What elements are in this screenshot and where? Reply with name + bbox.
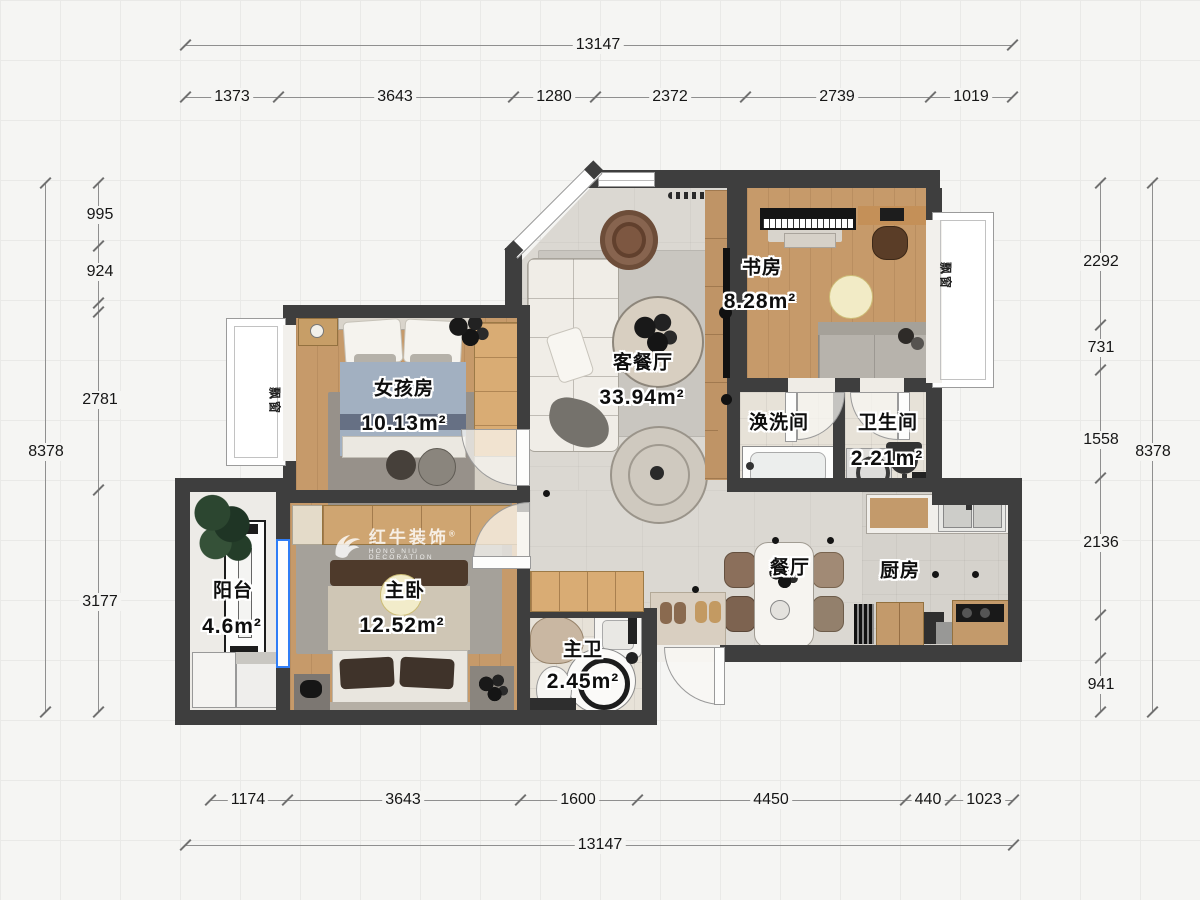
girl-nightstand-lamp [310, 324, 324, 338]
room-label-kitchen: 厨房 [880, 556, 920, 583]
balcony-cabinet [192, 652, 236, 708]
slippers-icon [660, 602, 672, 624]
ceiling-light-icon [972, 571, 979, 578]
wall [283, 305, 530, 318]
wall [740, 378, 788, 392]
dim-bottom-5: 1023 [963, 791, 1005, 809]
floorplan-page: { "colors": {"wall":"#3e3e3e","wood":"#c… [0, 0, 1200, 900]
entrance-door-leaf [714, 647, 725, 705]
desk-chair [872, 226, 908, 260]
dim-left-1: 924 [84, 263, 117, 281]
dim-left-0: 995 [84, 206, 117, 224]
ceiling-light-icon [932, 571, 939, 578]
wall [727, 478, 940, 492]
master-plant-icon [476, 672, 510, 706]
wall [727, 392, 740, 492]
room-label-study: 书房 [742, 253, 782, 280]
dim-top-2: 1280 [533, 88, 575, 106]
study-sofa-pillow [911, 337, 924, 350]
wall [175, 478, 190, 725]
wall [835, 378, 860, 392]
girl-plant-icon [444, 314, 492, 350]
dining-chair [724, 552, 756, 588]
balcony-plant-icon [190, 490, 254, 566]
room-label-masterbath: 主卫 [563, 635, 603, 662]
dim-right-1: 731 [1085, 339, 1118, 357]
bay-window-right-inner [940, 220, 986, 380]
dim-bottom-total: 13147 [575, 836, 626, 854]
girl-pouf [386, 450, 416, 480]
balcony-window [276, 539, 290, 668]
slippers-icon [674, 602, 686, 624]
knot-pillow [600, 210, 658, 270]
dim-right-3: 2136 [1080, 534, 1122, 552]
round-side-table-center [650, 466, 664, 480]
wall [276, 664, 290, 712]
dim-top-3: 2372 [649, 88, 691, 106]
wall [517, 567, 530, 612]
room-area-living: 33.94m² [599, 386, 684, 410]
dim-left-2: 2781 [79, 391, 121, 409]
wall [1008, 492, 1022, 662]
masterbath-shower-bar [628, 618, 637, 644]
tv-speaker-icon [721, 394, 732, 405]
room-area-girl: 10.13m² [361, 412, 446, 436]
girl-door-leaf [516, 429, 530, 486]
piano-keys [763, 219, 853, 228]
masterbath-drain-icon [626, 652, 638, 664]
wall [283, 460, 296, 503]
dim-right-0: 2292 [1080, 253, 1122, 271]
ceiling-light-icon [772, 537, 779, 544]
room-label-balcony: 阳台 [213, 576, 253, 603]
bay-window-label-right: 飘窗 [938, 262, 955, 290]
garland-decor-icon [668, 192, 710, 199]
cooktop-burner-icon [962, 608, 972, 618]
dining-teapot-icon [770, 600, 790, 620]
room-area-study: 8.28m² [724, 290, 797, 314]
slippers-icon [695, 601, 707, 623]
fridge-stripes [854, 604, 874, 644]
door-gap [860, 378, 904, 392]
kitchen-cutting-board [870, 498, 928, 528]
master-wardrobe-side [292, 505, 324, 545]
room-area-master: 12.52m² [359, 614, 444, 638]
room-area-masterbath: 2.45m² [547, 670, 620, 694]
dim-top-0: 1373 [211, 88, 253, 106]
master-bed-pillow [339, 657, 394, 690]
wall [517, 305, 530, 429]
room-area-balcony: 4.6m² [202, 615, 262, 639]
wall [175, 710, 657, 725]
wall [727, 170, 747, 392]
master-door-leaf [472, 556, 531, 569]
dining-chair [724, 596, 756, 632]
ceiling-light-icon [827, 537, 834, 544]
wall [283, 490, 530, 503]
dim-bottom-4: 440 [912, 791, 945, 809]
dim-bottom-3: 4450 [750, 791, 792, 809]
bull-logo-icon [332, 528, 363, 562]
bay-window-left-opening [283, 325, 296, 461]
watermark-sub: HONG NIU DECORATION [369, 549, 477, 562]
ceiling-light-icon [692, 586, 699, 593]
dining-chair [812, 596, 844, 632]
dim-right-4: 941 [1085, 676, 1118, 694]
dim-right-2: 1558 [1080, 431, 1122, 449]
bathtub-faucet-icon [746, 462, 754, 470]
wall [720, 645, 1022, 662]
ceiling-light-icon [543, 490, 550, 497]
registered-mark-icon: ® [449, 529, 458, 538]
kitchen-cabinet [876, 602, 924, 646]
floor-lamp [829, 275, 873, 319]
floorplan-canvas: 红牛装饰® HONG NIU DECORATION [0, 0, 1200, 900]
room-label-living: 客餐厅 [613, 348, 673, 375]
dim-top-1: 3643 [374, 88, 416, 106]
master-bed-pillow [399, 657, 454, 690]
room-label-bath: 卫生间 [858, 408, 918, 435]
dim-left-3: 3177 [79, 593, 121, 611]
dim-top-total: 13147 [573, 36, 624, 54]
door-gap [788, 378, 835, 392]
wall [642, 608, 657, 725]
dining-chair [812, 552, 844, 588]
wall [926, 385, 942, 492]
dim-top-5: 1019 [950, 88, 992, 106]
bay-window-label-left: 飘窗 [267, 387, 284, 415]
room-label-girl: 女孩房 [374, 374, 434, 401]
dim-line [185, 97, 1012, 98]
room-label-master: 主卧 [385, 576, 425, 603]
room-label-wash: 涣洗间 [749, 408, 809, 435]
master-nightstand-decor [300, 680, 322, 698]
watermark-brand: 红牛装饰 [369, 528, 449, 547]
girl-pouf [418, 448, 456, 486]
dim-right-total: 8378 [1132, 443, 1174, 461]
dim-bottom-2: 1600 [557, 791, 599, 809]
kitchen-gray-unit [936, 622, 952, 644]
dim-top-4: 2739 [816, 88, 858, 106]
dim-line [210, 800, 1013, 801]
dim-bottom-0: 1174 [228, 791, 268, 809]
brand-watermark: 红牛装饰® HONG NIU DECORATION [332, 520, 477, 570]
slippers-icon [709, 601, 721, 623]
room-area-bath: 2.21m² [851, 447, 924, 471]
hall-cabinet [530, 571, 644, 612]
dim-left-total: 8378 [25, 443, 67, 461]
cooktop-burner-icon [980, 608, 990, 618]
piano-bench [784, 233, 836, 248]
wall [517, 612, 530, 710]
room-label-dining: 餐厅 [770, 553, 810, 580]
wall [175, 478, 287, 492]
window [598, 172, 655, 187]
dim-bottom-1: 3643 [382, 791, 424, 809]
desk-keyboard [880, 208, 904, 221]
